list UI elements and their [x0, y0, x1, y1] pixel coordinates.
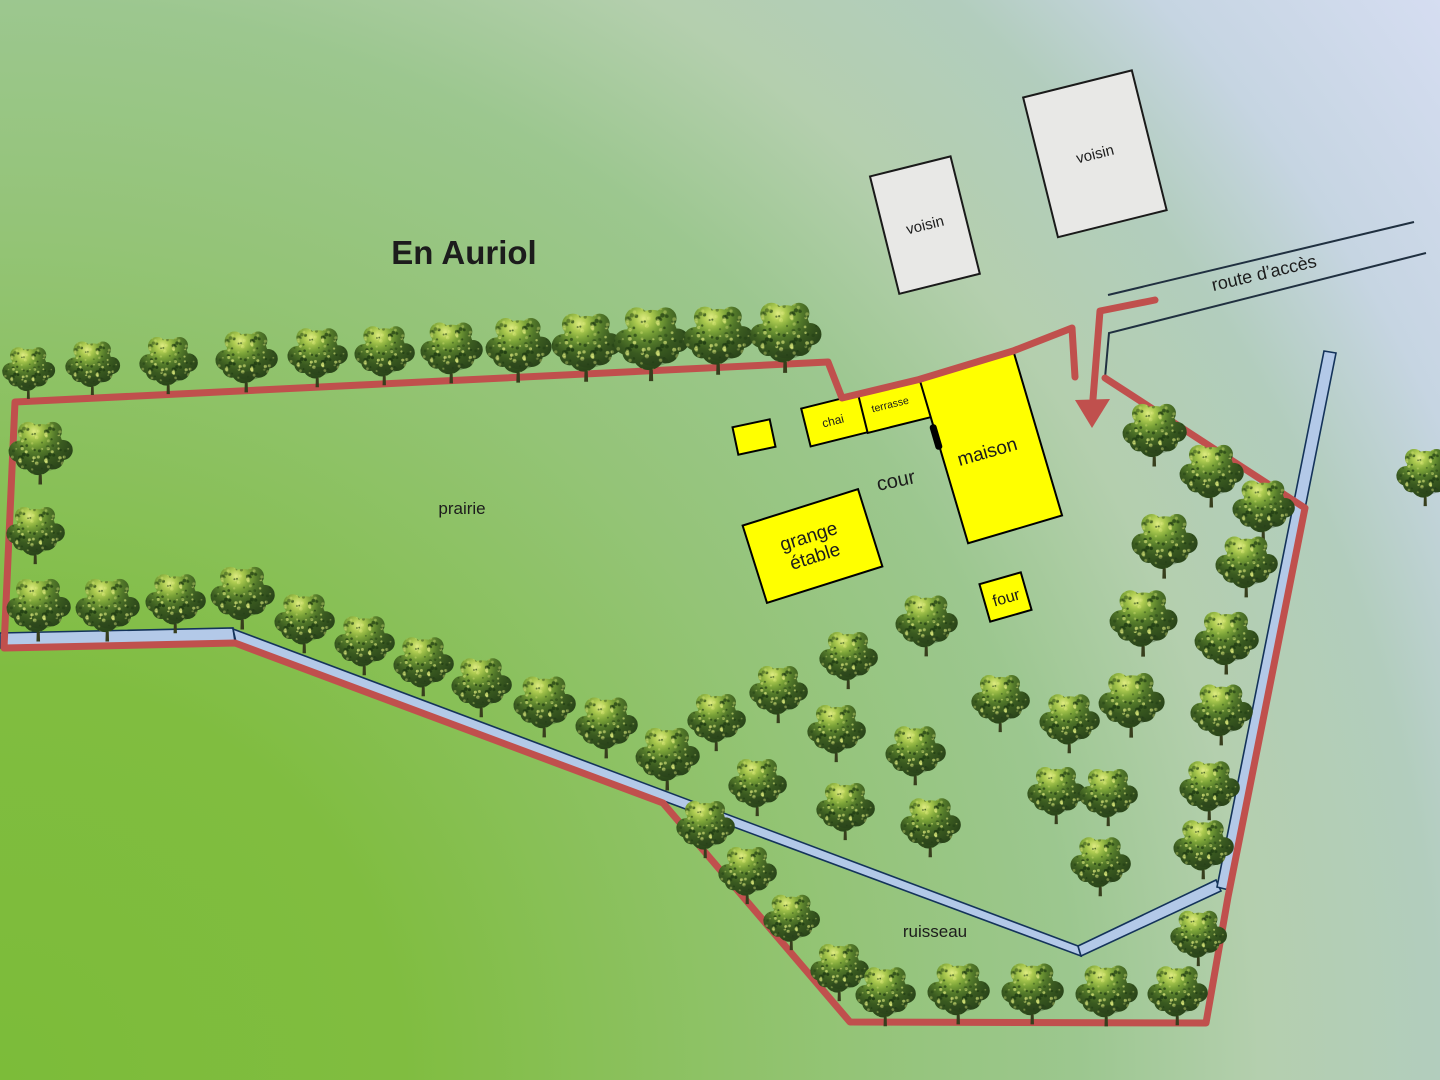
svg-text:prairie: prairie	[438, 499, 485, 518]
svg-text:ruisseau: ruisseau	[903, 922, 967, 941]
svg-text:En Auriol: En Auriol	[391, 234, 536, 271]
